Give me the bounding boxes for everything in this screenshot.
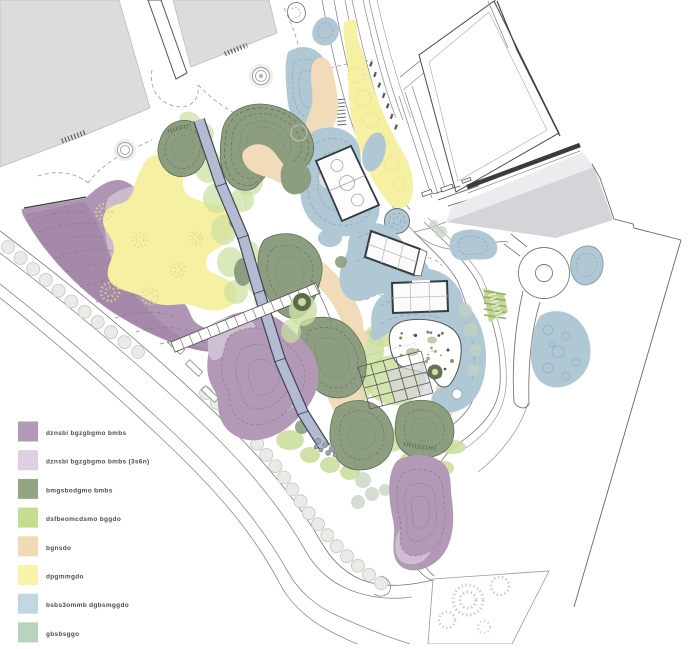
svg-text:bmgsbodgmo bmbs: bmgsbodgmo bmbs [46,487,113,494]
svg-text:dznsbi bgzgbgmo bmbs (3s6n): dznsbi bgzgbgmo bmbs (3s6n) [46,459,149,466]
svg-text:bgnsdo: bgnsdo [46,545,71,552]
svg-text:dznsbi bgzgbgmo bmbs: dznsbi bgzgbgmo bmbs [46,430,126,437]
svg-text:bsbs3ommb dgbsmggdo: bsbs3ommb dgbsmggdo [46,602,129,609]
svg-text:dsfbeomcdsmo bggdo: dsfbeomcdsmo bggdo [46,516,121,523]
svg-text:dpgmmgdo: dpgmmgdo [46,574,84,581]
svg-text:gbsbsggo: gbsbsggo [46,631,79,638]
